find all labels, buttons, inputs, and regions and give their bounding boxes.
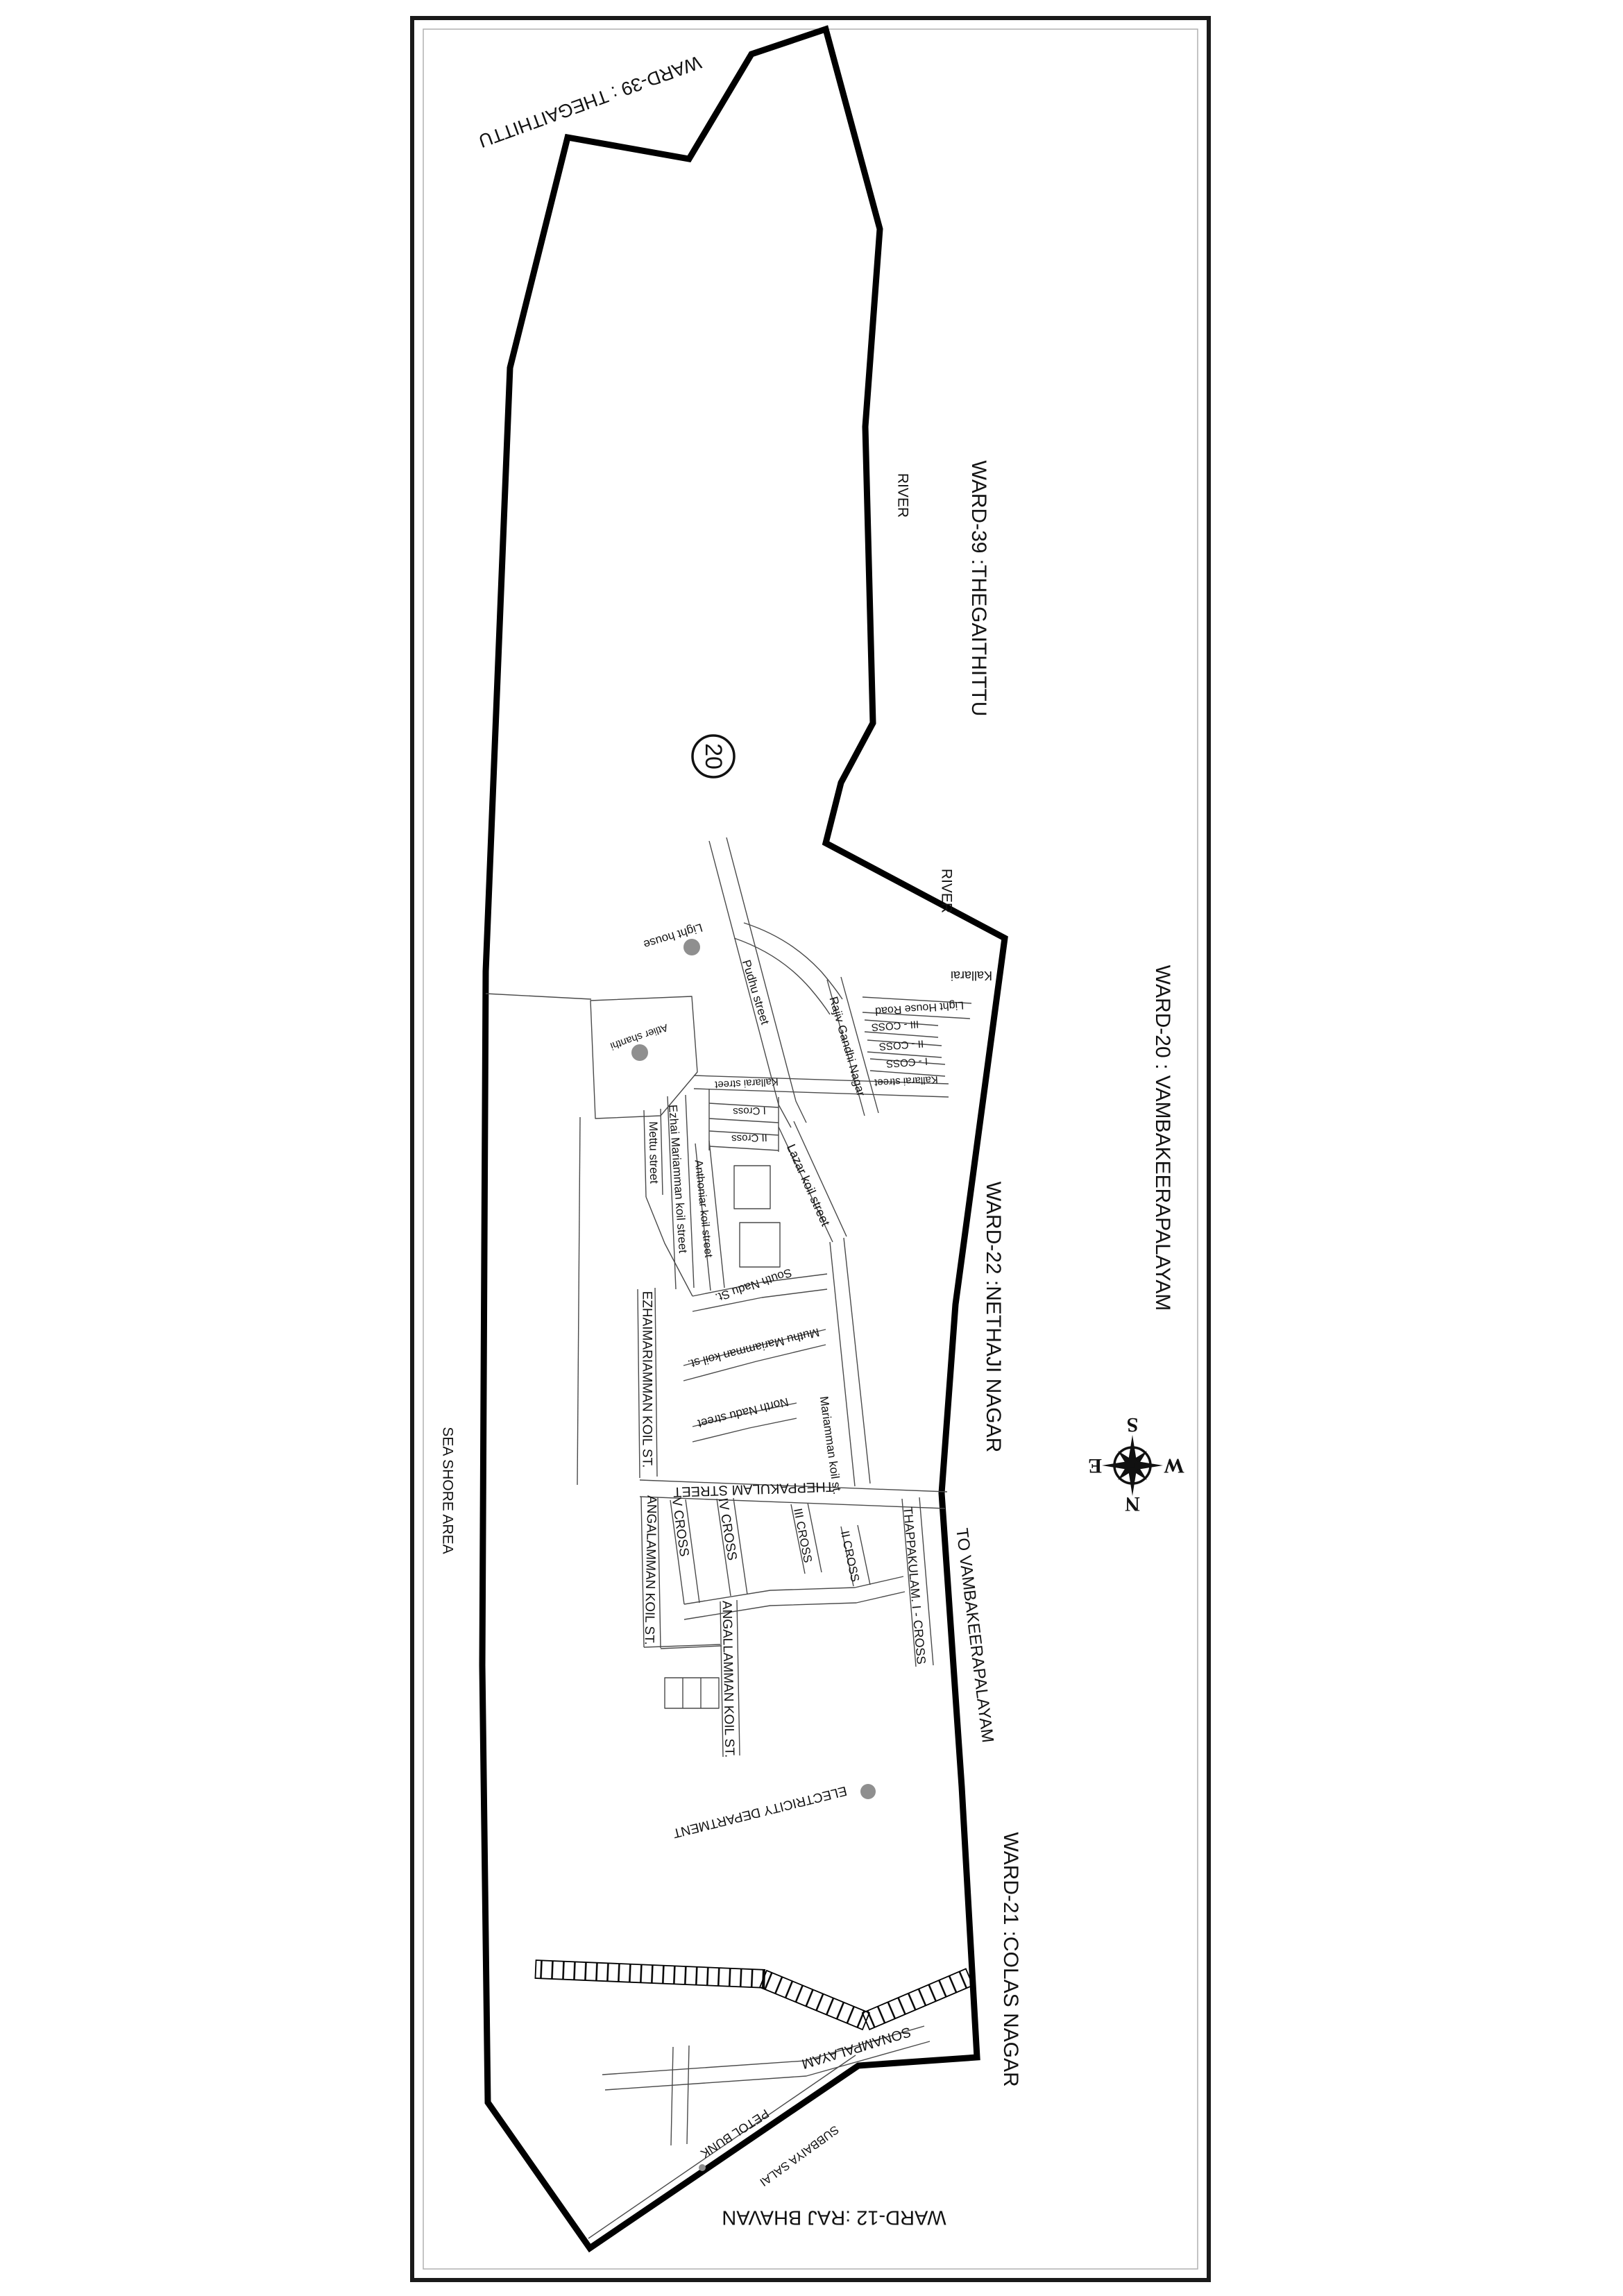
light-house-dot	[683, 939, 700, 955]
label-i-cross-small: I Cross	[733, 1105, 766, 1117]
label-ward21: WARD-21 :COLAS NAGAR	[1000, 1832, 1021, 2086]
label-ezhaimariamman-koil-st: EZHAIMARIAMMAN KOIL ST.	[640, 1291, 654, 1468]
railway-track	[535, 1960, 973, 2030]
label-mettu-street: Mettu street	[647, 1121, 661, 1184]
label-river-1: RIVER	[896, 473, 910, 518]
label-compass-s: S	[1127, 1414, 1139, 1435]
label-river-2: RIVER	[940, 869, 954, 913]
label-ward20-title: WARD-20 : VAMBAKEERAPALAYAM	[1152, 965, 1173, 1311]
label-ward12: WARD-12 :RAJ BHAVAN	[722, 2207, 946, 2227]
label-coss-ii: II - COSS	[878, 1038, 924, 1051]
label-kallarai: Kallarai	[951, 969, 992, 982]
label-compass-n: N	[1125, 1493, 1140, 1514]
label-ii-cross-small: II Cross	[731, 1132, 767, 1144]
label-ward22: WARD-22 :NETHAJI NAGAR	[983, 1182, 1003, 1453]
map-border	[412, 18, 1209, 2280]
atlier-shanthi-dot	[631, 1044, 648, 1061]
compass-rose	[1102, 1435, 1163, 1496]
electricity-department-dot	[860, 1784, 876, 1799]
label-ward-number: 20	[702, 743, 725, 769]
ward-map-canvas	[0, 0, 1623, 2296]
label-ward39-right: WARD-39 :THEGAITHITTU	[968, 461, 989, 717]
label-sea-shore: SEA SHORE AREA	[441, 1427, 455, 1554]
label-compass-w: W	[1164, 1455, 1184, 1476]
petol-bunk-dot	[699, 2164, 706, 2171]
label-angalamman-koil-st: ANGALAMMAN KOIL ST.	[643, 1495, 658, 1645]
label-compass-e: E	[1088, 1455, 1102, 1476]
label-coss-i: I - COSS	[886, 1055, 928, 1069]
map-page: WARD-39 : THEGAITHITTUWARD-39 :THEGAITHI…	[0, 0, 1623, 2296]
label-angallamman-koil-st: ANGALLAMMAN KOIL ST.	[720, 1601, 736, 1758]
